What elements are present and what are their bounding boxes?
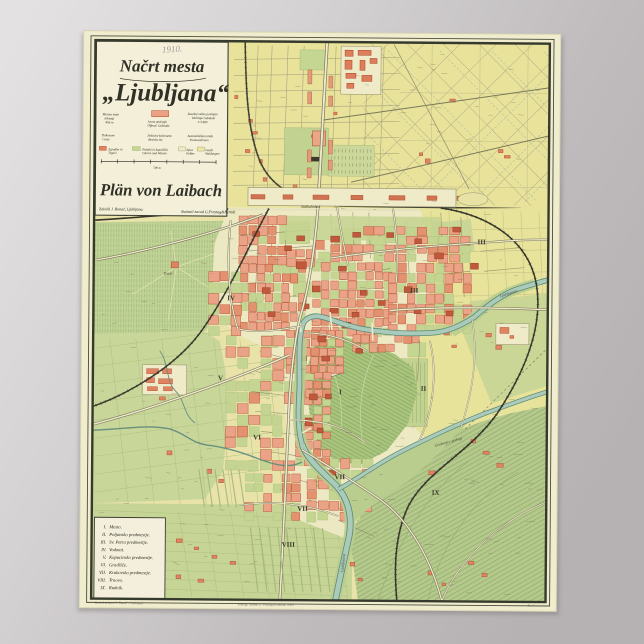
svg-text:1:5.800: 1:5.800: [198, 120, 208, 124]
svg-text:„Ljubljana“: „Ljubljana“: [102, 79, 229, 107]
svg-text:Načrt mesta: Načrt mesta: [119, 56, 205, 76]
svg-text:Nr. 4: Nr. 4: [528, 604, 535, 608]
svg-text:Öffentl. Gebäude: Öffentl. Gebäude: [148, 123, 171, 128]
svg-text:Poljansko predmestje.: Poljansko predmestje.: [108, 532, 150, 537]
svg-text:500 m: 500 m: [153, 166, 161, 170]
svg-text:II.: II.: [101, 532, 106, 537]
svg-text:I.: I.: [103, 524, 107, 529]
svg-text:Tramwaylinien: Tramwaylinien: [189, 138, 209, 142]
svg-text:Rudnik.: Rudnik.: [108, 585, 123, 590]
svg-text:Plän von Laibach: Plän von Laibach: [99, 180, 222, 200]
svg-text:Buchdruckerei J. Bonač v Ljubl: Buchdruckerei J. Bonač v Ljubljani.: [95, 601, 144, 605]
svg-text:Gärten und Wiesen: Gärten und Wiesen: [142, 151, 167, 155]
svg-text:Waldungen: Waldungen: [205, 152, 220, 156]
svg-text:Krakovsko predmestje.: Krakovsko predmestje.: [108, 570, 151, 575]
svg-text:Gradišče.: Gradišče.: [109, 562, 127, 567]
svg-text:1910.: 1910.: [162, 44, 183, 55]
svg-text:VI.: VI.: [101, 562, 107, 567]
svg-text:IV.: IV.: [100, 547, 107, 552]
svg-text:Trgovi: Trgovi: [108, 151, 116, 155]
svg-text:Kapucinsko predmestje.: Kapucinsko predmestje.: [108, 555, 153, 560]
svg-text:Natisnil zavod G.Freytag&Bernd: Natisnil zavod G.Freytag&Berndt: [180, 209, 236, 214]
svg-text:Ceste: Ceste: [102, 137, 110, 141]
svg-text:Vodmat.: Vodmat.: [109, 547, 124, 552]
svg-text:Bezirks-Str.: Bezirks-Str.: [148, 138, 163, 142]
svg-text:Felder: Felder: [185, 151, 195, 155]
svg-text:Sv. Petra predmestje.: Sv. Petra predmestje.: [109, 540, 148, 545]
svg-text:896 m: 896 m: [106, 120, 115, 124]
svg-text:VII.: VII.: [99, 570, 106, 575]
svg-text:III.: III.: [99, 539, 106, 544]
svg-text:IX.: IX.: [99, 585, 106, 590]
svg-text:Trnovo.: Trnovo.: [109, 578, 123, 583]
svg-text:Mesto.: Mesto.: [108, 524, 121, 529]
svg-text:VIII.: VIII.: [97, 577, 106, 582]
